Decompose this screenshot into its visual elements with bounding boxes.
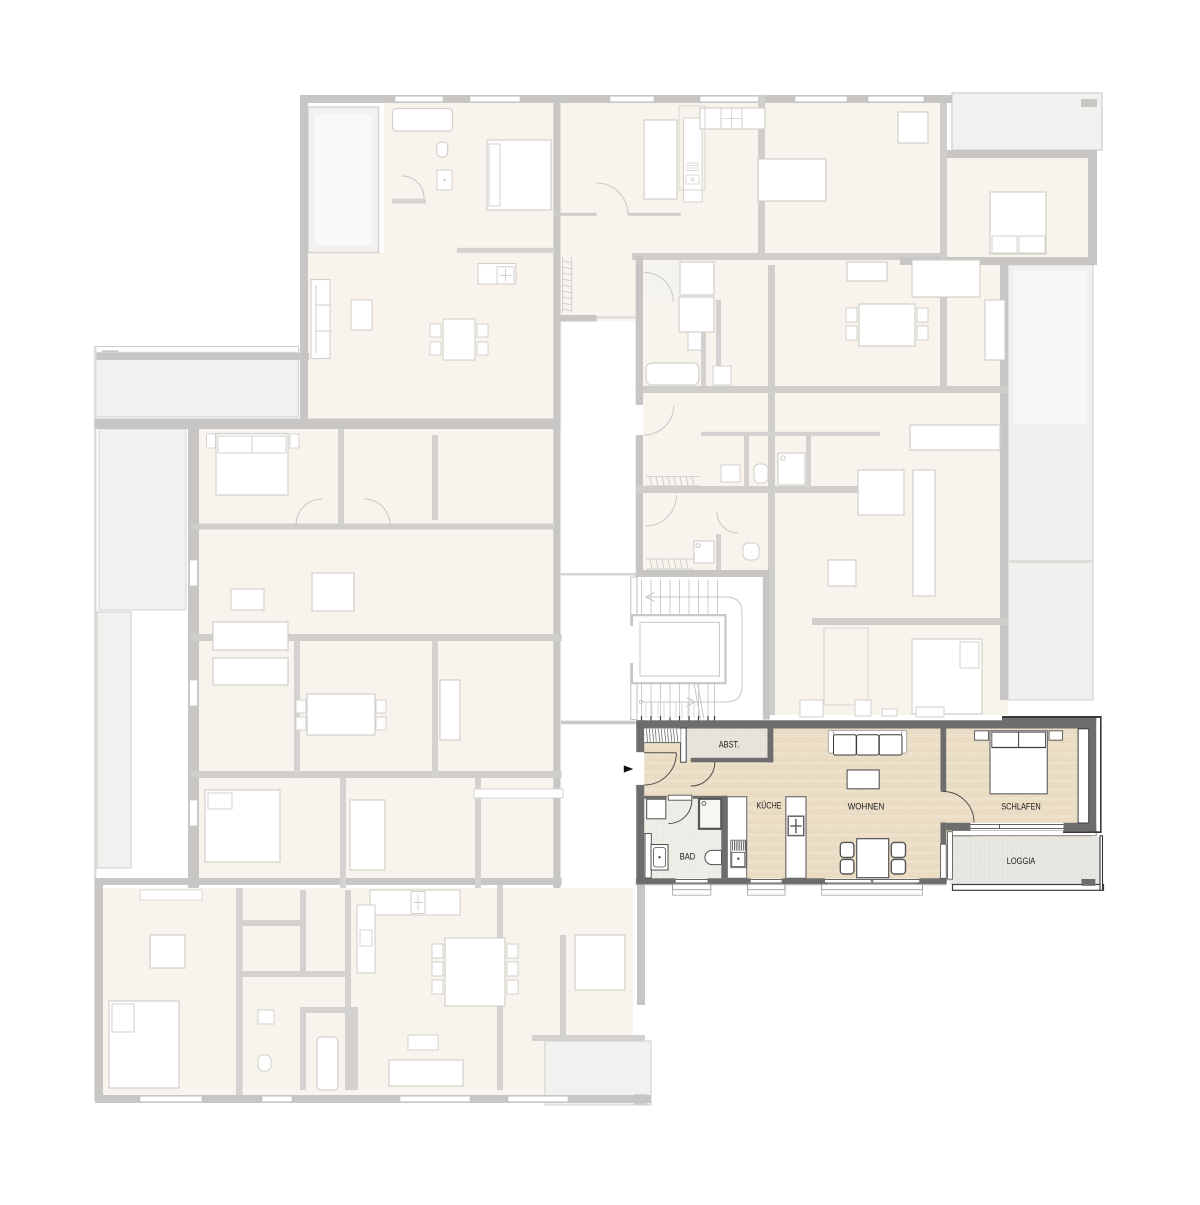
svg-text:WOHNEN: WOHNEN <box>848 802 885 812</box>
svg-text:LOGGIA: LOGGIA <box>1007 856 1036 866</box>
svg-text:SCHLAFEN: SCHLAFEN <box>1001 802 1041 812</box>
svg-text:BAD: BAD <box>680 852 696 862</box>
svg-text:ABST.: ABST. <box>719 740 740 750</box>
svg-text:KÜCHE: KÜCHE <box>757 801 782 811</box>
